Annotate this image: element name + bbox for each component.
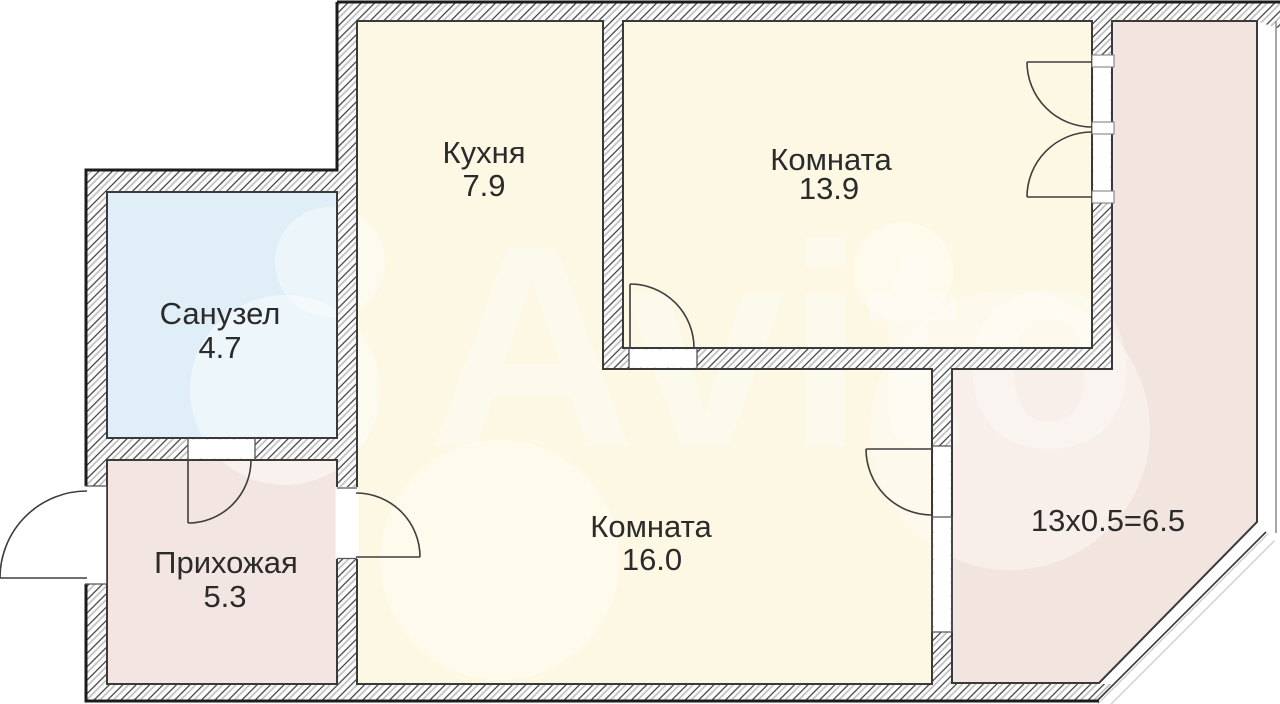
- svg-text:16.0: 16.0: [622, 542, 682, 577]
- svg-text:13x0.5=6.5: 13x0.5=6.5: [1031, 503, 1185, 538]
- svg-text:13.9: 13.9: [799, 171, 859, 206]
- svg-text:Кухня: Кухня: [443, 135, 526, 170]
- svg-text:7.9: 7.9: [462, 168, 505, 203]
- svg-text:4.7: 4.7: [198, 330, 241, 365]
- svg-text:Комната: Комната: [590, 509, 712, 544]
- svg-text:5.3: 5.3: [203, 579, 246, 614]
- svg-text:Прихожая: Прихожая: [154, 545, 298, 580]
- svg-text:Санузел: Санузел: [160, 296, 281, 331]
